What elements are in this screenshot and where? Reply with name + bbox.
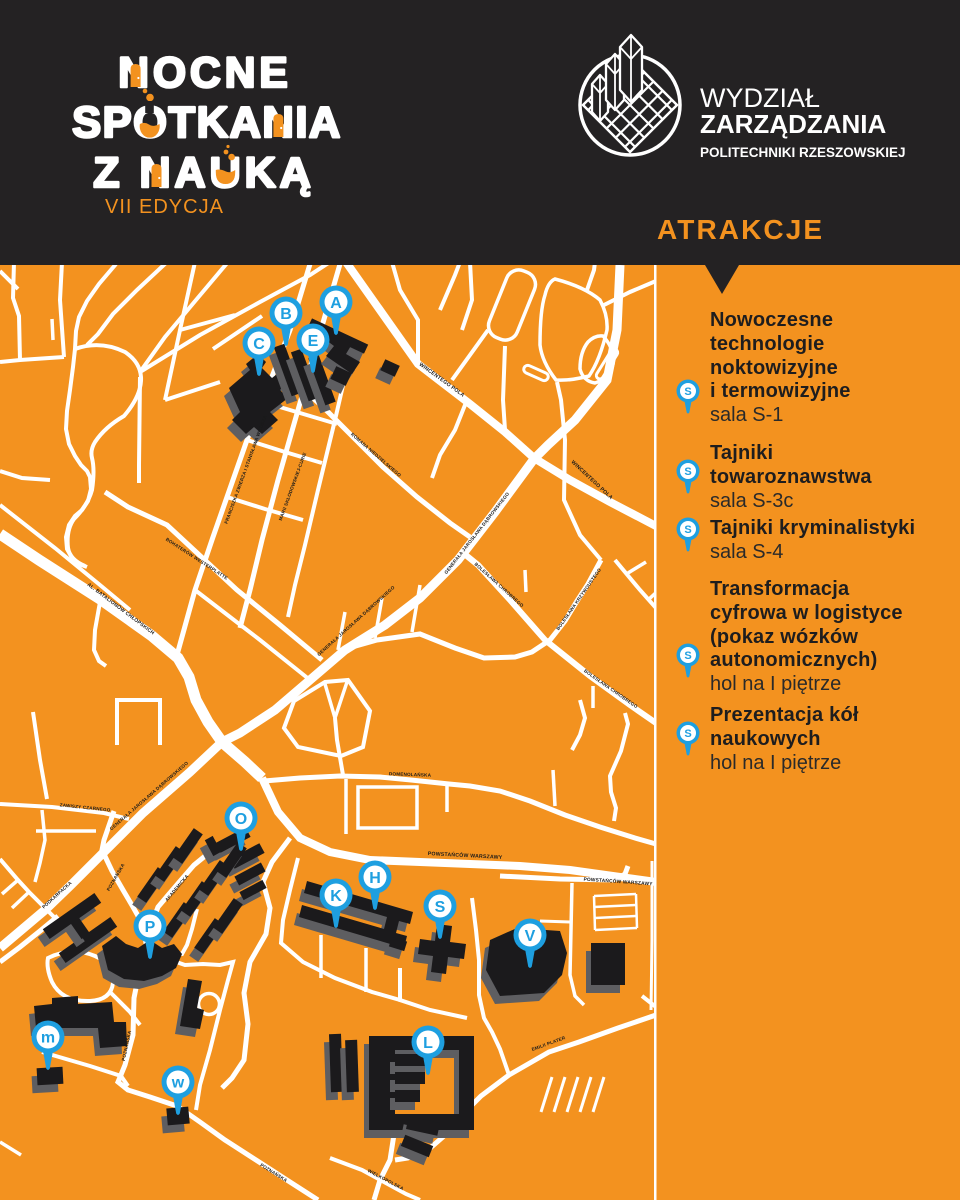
svg-text:B: B xyxy=(280,306,292,323)
svg-text:S: S xyxy=(684,524,691,536)
svg-text:V: V xyxy=(525,928,536,945)
svg-text:O: O xyxy=(235,811,247,828)
svg-text:GENERAŁA JAROSŁAWA DĄBROWSKIEG: GENERAŁA JAROSŁAWA DĄBROWSKIEGO xyxy=(109,760,190,831)
svg-text:PODKARPACKA: PODKARPACKA xyxy=(41,880,73,910)
svg-text:POZNAŃSKA: POZNAŃSKA xyxy=(259,1161,289,1184)
svg-text:VII EDYCJA: VII EDYCJA xyxy=(105,196,224,218)
svg-text:S: S xyxy=(684,650,691,662)
svg-text:WINCENTEGO POLA: WINCENTEGO POLA xyxy=(418,362,466,399)
svg-text:S: S xyxy=(684,728,691,740)
svg-text:SPOTKANIA: SPOTKANIA xyxy=(72,99,342,147)
svg-text:DOMENOLAŃSKA: DOMENOLAŃSKA xyxy=(389,769,432,777)
svg-text:ROMANA NIEDZIELSKIEGO: ROMANA NIEDZIELSKIEGO xyxy=(350,432,402,478)
svg-text:w: w xyxy=(171,1075,185,1092)
svg-text:m: m xyxy=(41,1030,55,1047)
svg-text:BOLESŁAWA CHROBREGO: BOLESŁAWA CHROBREGO xyxy=(473,561,524,608)
svg-text:BOLESŁAWA KRZYWOUSTEGO: BOLESŁAWA KRZYWOUSTEGO xyxy=(555,567,602,631)
svg-text:AKADEMICKA: AKADEMICKA xyxy=(164,873,190,902)
svg-text:L: L xyxy=(423,1035,433,1052)
svg-text:P: P xyxy=(145,919,156,936)
svg-text:ZARZĄDZANIA: ZARZĄDZANIA xyxy=(700,109,887,139)
svg-text:POLITECHNIKI RZESZOWSKIEJ: POLITECHNIKI RZESZOWSKIEJ xyxy=(700,145,906,160)
svg-text:A: A xyxy=(330,295,342,312)
svg-text:S: S xyxy=(684,466,691,478)
svg-text:K: K xyxy=(330,888,342,905)
svg-text:S: S xyxy=(435,899,446,916)
svg-text:H: H xyxy=(369,870,381,887)
svg-text:S: S xyxy=(684,386,691,398)
svg-text:BOHATERÓW WESTERPLATTE: BOHATERÓW WESTERPLATTE xyxy=(165,535,230,581)
svg-text:C: C xyxy=(253,336,265,353)
svg-text:ATRAKCJE: ATRAKCJE xyxy=(657,214,824,245)
svg-text:Z NAUKĄ: Z NAUKĄ xyxy=(93,149,314,197)
svg-text:E: E xyxy=(308,333,319,350)
